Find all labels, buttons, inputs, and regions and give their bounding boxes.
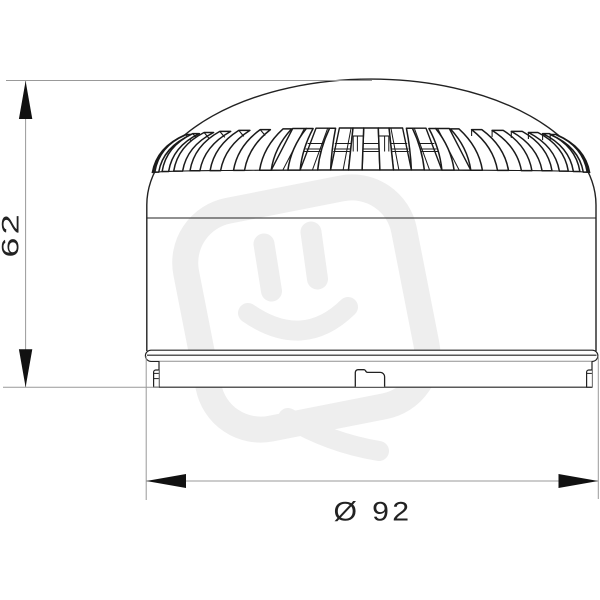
svg-text:62: 62 [0, 211, 24, 257]
svg-text:Ø 92: Ø 92 [334, 497, 413, 527]
